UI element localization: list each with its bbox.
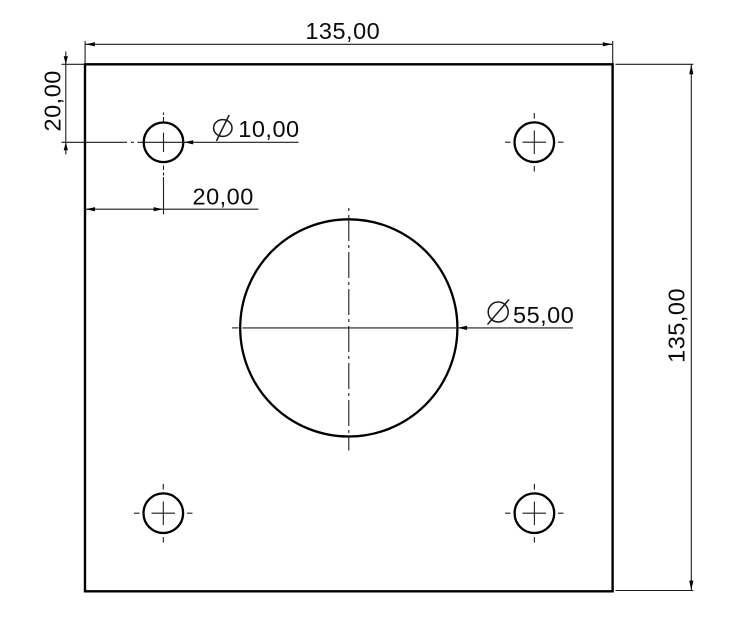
svg-text:135,00: 135,00	[664, 288, 690, 363]
svg-text:135,00: 135,00	[305, 18, 380, 44]
svg-text:20,00: 20,00	[193, 184, 254, 210]
svg-text:55,00: 55,00	[513, 302, 574, 328]
svg-text:10,00: 10,00	[238, 116, 299, 142]
svg-text:20,00: 20,00	[39, 70, 65, 131]
